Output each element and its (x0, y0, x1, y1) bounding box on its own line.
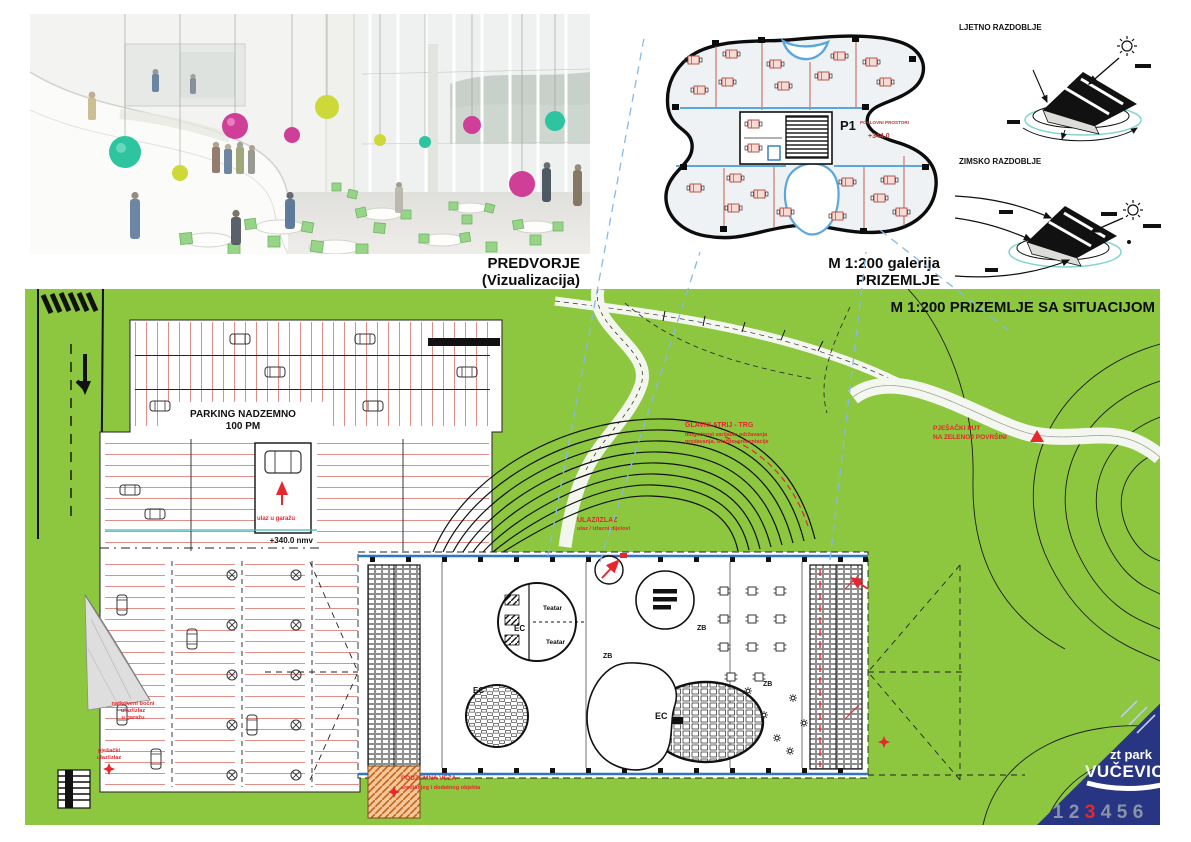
pedestrian-label-1: pješački (98, 748, 121, 754)
atrium-label-sub1: mogućnost varijable održavanja (685, 432, 768, 438)
canopy-label-3: u garažu (121, 715, 145, 721)
garage-ramp-label: ulaz u garažu (257, 516, 295, 522)
visualization-caption: PREDVORJE (Vizualizacija) (408, 255, 580, 289)
room-label-zb-2: ZB (697, 625, 706, 632)
room-label-ec-2: EC (473, 686, 484, 695)
sun-icon (1123, 200, 1143, 220)
parking-elevation: +340.0 nmv (270, 536, 314, 545)
summer-diagram: LJETNO RAZDOBLJE (955, 18, 1185, 146)
logo-number-3-active: 3 (1085, 802, 1096, 823)
room-label-zb-3: ZB (763, 681, 772, 688)
underground-label-title: PODZEMNA VEZA (401, 775, 457, 782)
underground-link (368, 766, 420, 818)
path-label-1: PJEŠAČKI PUT (933, 423, 980, 432)
gallery-plan-caption: M 1:200 galerija PRIZEMLJE (745, 255, 940, 289)
room-label-teatar-2: Teatar (546, 639, 565, 646)
site-plan: PJEŠAČKI PUT NA ZELENOJ POVRŠINI M 1:200… (25, 289, 1160, 825)
building-plan: EC Teatar Teatar EC EC ZB ZB ZB (358, 552, 868, 778)
winter-diagram: ZIMSKO RAZDOBLJE (955, 152, 1185, 284)
winter-label: ZIMSKO RAZDOBLJE (959, 157, 1042, 166)
site-plan-title: M 1:200 PRIZEMLJE SA SITUACIJOM (891, 299, 1156, 316)
logo-number-5: 5 (1117, 802, 1128, 823)
room-label-teatar-1: Teatar (543, 605, 562, 612)
logo-number-1: 1 (1053, 802, 1064, 823)
room-label-ec-1: EC (514, 624, 525, 633)
presentation-board: { "visualization": { "caption": "PREDVOR… (0, 0, 1191, 842)
gallery-unit-label: P1 (840, 118, 856, 133)
room-label-zb-1: ZB (603, 653, 612, 660)
entrance-label-sub: ulaz / izlazni dijelovi (577, 526, 631, 532)
visualization-image (30, 14, 590, 254)
room-label-ec-3: EC (655, 711, 668, 721)
logo-number-4: 4 (1101, 802, 1112, 823)
gallery-floor-plan: P1 POSLOVNI PROSTORI +344.0 (628, 16, 958, 256)
logo-number-6: 6 (1133, 802, 1144, 823)
exterior-stairs (58, 770, 90, 808)
atrium-label-sub2: predavanja, izložbe, prezentacije (685, 439, 769, 445)
pedestrian-label-2: ulaz/izlaz (97, 755, 121, 761)
gallery-unit-sublabel: POSLOVNI PROSTORI (860, 120, 909, 125)
summer-label: LJETNO RAZDOBLJE (959, 23, 1042, 32)
path-label-2: NA ZELENOJ POVRŠINI (933, 432, 1007, 441)
gallery-elevation: +344.0 (868, 133, 890, 140)
atrium-label-title: GLAVNI ATRIJ - TRG (685, 422, 754, 429)
logo-line2: VUČEVICA (1085, 762, 1160, 781)
logo-line1: zt park (1110, 747, 1153, 762)
logo-number-2: 2 (1069, 802, 1080, 823)
canopy-label-2: ulaz/izlaz (121, 708, 145, 714)
canopy-label-1: natkriveni bočni (112, 701, 155, 707)
sun-icon (1117, 36, 1137, 56)
entrance-label-title: ULAZ/IZLAZ (577, 517, 618, 524)
underground-label-sub: središnjeg i dodatnog objekta (401, 785, 481, 791)
parking-label-2: 100 PM (226, 421, 260, 432)
parking-label-1: PARKING NADZEMNO (190, 409, 296, 420)
